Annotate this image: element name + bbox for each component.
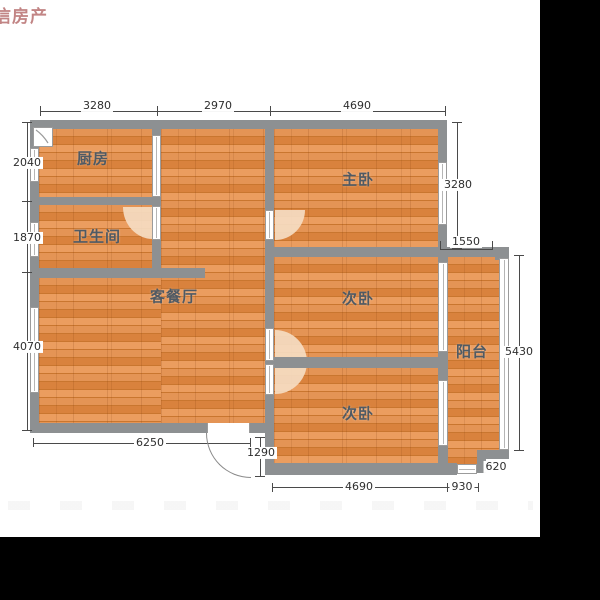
floor-area	[39, 278, 161, 423]
dimension-tick	[447, 483, 448, 492]
window-mullion	[459, 469, 475, 470]
dimension-tick	[272, 483, 273, 492]
dimension-tick	[157, 106, 158, 116]
dimension-tick	[33, 438, 34, 447]
wall-segment	[265, 240, 274, 328]
window-band	[438, 380, 448, 446]
dim-label-left-2: 1870	[11, 232, 43, 244]
dim-label-right-master: 3280	[442, 179, 474, 191]
window-band	[265, 328, 274, 361]
room-label-master: 主卧	[342, 169, 374, 190]
dimension-tick	[255, 476, 265, 477]
window-mullion	[269, 330, 270, 359]
window-mullion	[156, 208, 157, 238]
room-label-bedroom2: 次卧	[342, 288, 374, 309]
room-label-bedroom3: 次卧	[342, 403, 374, 424]
dimension-tick	[440, 241, 441, 250]
dim-label-bottom-balcony: 930	[450, 481, 475, 493]
corner-arc-glyph	[34, 128, 52, 146]
wall-segment	[274, 357, 447, 368]
window-band	[457, 464, 477, 474]
wall-segment	[250, 423, 274, 433]
dim-label-bottom-living: 6250	[134, 437, 166, 449]
window-band	[265, 364, 274, 395]
window-band	[152, 135, 161, 197]
dim-label-balcony-width: 1550	[450, 236, 482, 248]
wall-segment	[30, 120, 447, 129]
dim-label-bottom-bed: 4690	[343, 481, 375, 493]
wall-segment	[265, 129, 274, 210]
window-mullion	[443, 382, 444, 444]
room-label-bathroom: 卫生间	[73, 226, 121, 247]
window-band	[265, 210, 274, 240]
wall-segment	[438, 446, 448, 463]
corner-flue-icon	[33, 127, 53, 147]
dimension-tick	[514, 255, 524, 256]
dimension-tick	[514, 450, 524, 451]
wall-segment	[438, 352, 448, 380]
dimension-tick	[445, 106, 446, 116]
dimension-tick	[452, 248, 462, 249]
wall-segment	[265, 463, 457, 475]
dimension-line	[440, 249, 493, 250]
window-band	[438, 162, 447, 225]
wall-segment	[30, 268, 205, 278]
floor-plan-image: 信房产 厨房 卫生间 客餐厅 主卧 次卧 次卧 阳台 3280 2970 469…	[0, 0, 600, 600]
window-mullion	[443, 264, 444, 350]
window-band	[152, 206, 161, 240]
dimension-tick	[22, 122, 32, 123]
wall-segment	[39, 197, 161, 205]
dimension-tick	[452, 122, 462, 123]
dimension-tick	[478, 483, 479, 492]
window-mullion	[269, 212, 270, 238]
dimension-tick	[40, 106, 41, 116]
dimension-tick	[270, 106, 271, 116]
dim-label-left-1: 2040	[11, 157, 43, 169]
faint-watermark-strip	[8, 501, 533, 510]
entry-doorway	[207, 423, 250, 433]
letterbox-bar-right	[540, 0, 600, 600]
window-band	[438, 262, 448, 352]
dim-label-right-height: 5430	[503, 346, 535, 358]
room-label-living: 客餐厅	[150, 286, 198, 307]
watermark-text: 信房产	[0, 2, 48, 27]
dimension-tick	[22, 272, 32, 273]
window-mullion	[442, 164, 443, 223]
dim-label-entry-door: 1290	[245, 447, 277, 459]
room-label-balcony: 阳台	[456, 341, 488, 362]
dimension-tick	[22, 430, 32, 431]
dimension-tick	[22, 201, 32, 202]
dimension-tick	[255, 437, 265, 438]
window-mullion	[269, 366, 270, 393]
dimension-tick	[492, 241, 493, 250]
window-mullion	[156, 137, 157, 195]
dim-label-notch: 620	[484, 461, 509, 473]
dim-label-left-3: 4070	[11, 341, 43, 353]
wall-segment	[30, 423, 207, 433]
dim-label-top-2: 2970	[202, 100, 234, 112]
room-label-kitchen: 厨房	[77, 148, 109, 169]
letterbox-bar-bottom	[0, 537, 600, 600]
dim-label-top-1: 3280	[81, 100, 113, 112]
dim-label-top-3: 4690	[341, 100, 373, 112]
